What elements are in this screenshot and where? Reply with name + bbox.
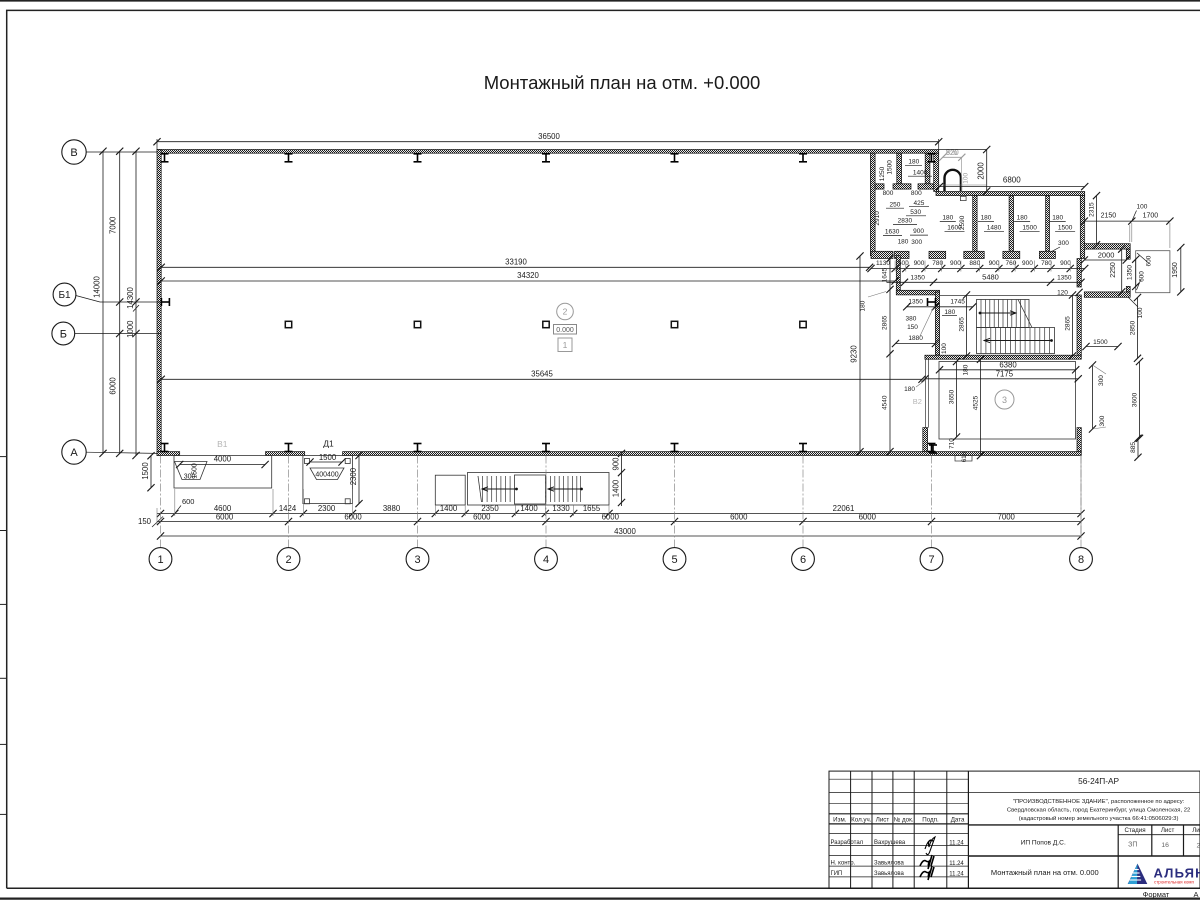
svg-text:11.24: 11.24	[949, 872, 964, 878]
svg-text:4000: 4000	[214, 455, 232, 464]
svg-text:1350: 1350	[1127, 265, 1134, 280]
svg-text:4525: 4525	[972, 395, 979, 410]
svg-text:425: 425	[913, 200, 924, 207]
svg-text:2590: 2590	[959, 215, 966, 230]
svg-text:"ПРОИЗВОДСТВЕННОЕ ЗДАНИЕ", рас: "ПРОИЗВОДСТВЕННОЕ ЗДАНИЕ", расположенное…	[1013, 799, 1185, 805]
svg-text:2: 2	[563, 307, 568, 317]
svg-text:ЗП: ЗП	[1128, 842, 1137, 849]
svg-text:(кадастровый номер земельного: (кадастровый номер земельного участка 66…	[1019, 815, 1179, 822]
svg-text:2150: 2150	[1101, 213, 1117, 220]
svg-text:В1: В1	[217, 439, 228, 449]
svg-text:Стадия: Стадия	[1124, 827, 1145, 834]
svg-text:№ док.: № док.	[894, 817, 914, 824]
svg-text:2865: 2865	[958, 317, 965, 332]
svg-text:6: 6	[800, 554, 806, 566]
svg-text:2315: 2315	[1088, 202, 1095, 217]
svg-text:1950: 1950	[1172, 262, 1179, 278]
svg-text:5480: 5480	[982, 273, 999, 282]
svg-text:56-24П-АР: 56-24П-АР	[1078, 776, 1119, 786]
svg-text:820: 820	[946, 150, 957, 157]
svg-text:100: 100	[962, 172, 969, 183]
svg-text:9230: 9230	[850, 345, 859, 363]
svg-text:6380: 6380	[999, 360, 1017, 369]
svg-text:1630: 1630	[885, 229, 900, 236]
svg-text:6800: 6800	[1003, 176, 1021, 185]
svg-text:900: 900	[1022, 260, 1033, 267]
svg-text:180: 180	[962, 364, 969, 375]
svg-text:АЛЬЯН: АЛЬЯН	[1154, 866, 1200, 881]
svg-text:180: 180	[981, 215, 992, 222]
svg-text:Дата: Дата	[951, 817, 965, 824]
svg-text:4: 4	[543, 554, 549, 566]
svg-text:1350: 1350	[908, 298, 923, 305]
svg-text:Подп.: Подп.	[922, 817, 939, 824]
svg-text:2850: 2850	[1129, 320, 1136, 335]
svg-text:180: 180	[944, 309, 955, 316]
svg-text:5: 5	[671, 554, 677, 566]
svg-text:1330: 1330	[552, 504, 570, 513]
svg-text:1500: 1500	[141, 462, 150, 480]
svg-text:2000: 2000	[977, 162, 986, 180]
svg-text:43000: 43000	[614, 527, 636, 536]
svg-text:300: 300	[911, 239, 922, 246]
svg-text:14300: 14300	[126, 286, 135, 308]
svg-text:1350: 1350	[910, 275, 925, 282]
svg-text:1700: 1700	[1143, 213, 1159, 220]
svg-text:1: 1	[157, 554, 163, 566]
svg-text:Вахрушева: Вахрушева	[874, 840, 906, 846]
svg-text:1500: 1500	[887, 160, 894, 175]
svg-text:Изм.: Изм.	[833, 817, 847, 824]
svg-text:Свердловская область, город Ек: Свердловская область, город Екатеринбург…	[1007, 808, 1190, 814]
svg-text:710: 710	[948, 438, 955, 449]
svg-text:400400: 400400	[315, 472, 338, 479]
svg-text:1655: 1655	[583, 504, 601, 513]
svg-text:380: 380	[905, 315, 916, 322]
svg-text:600: 600	[1139, 271, 1146, 282]
svg-text:7175: 7175	[996, 370, 1014, 379]
svg-text:6000: 6000	[859, 512, 877, 521]
svg-text:2: 2	[1197, 843, 1200, 850]
svg-text:6000: 6000	[216, 512, 234, 521]
svg-text:А: А	[1193, 890, 1198, 899]
svg-text:1880: 1880	[908, 335, 923, 342]
svg-text:Формат: Формат	[1143, 890, 1170, 899]
svg-text:1500: 1500	[1093, 339, 1108, 346]
svg-text:900: 900	[612, 457, 621, 471]
svg-text:3: 3	[414, 554, 420, 566]
svg-text:900: 900	[989, 260, 1000, 267]
svg-text:B2: B2	[913, 397, 922, 406]
svg-text:180: 180	[898, 239, 909, 246]
svg-text:22061: 22061	[833, 504, 855, 513]
svg-text:Б1: Б1	[58, 290, 71, 301]
svg-text:780: 780	[1041, 260, 1052, 267]
svg-text:900: 900	[914, 260, 925, 267]
svg-text:11.24: 11.24	[949, 861, 964, 867]
svg-text:180: 180	[860, 300, 867, 311]
svg-text:6000: 6000	[602, 512, 620, 521]
svg-text:1: 1	[563, 340, 568, 350]
svg-text:6000: 6000	[473, 512, 491, 521]
svg-text:7000: 7000	[109, 216, 118, 234]
svg-text:180: 180	[1017, 215, 1028, 222]
svg-text:1480: 1480	[987, 225, 1002, 232]
svg-text:1745: 1745	[950, 298, 965, 305]
svg-text:0.000: 0.000	[556, 327, 574, 334]
svg-text:3: 3	[1002, 395, 1007, 405]
svg-text:1400: 1400	[440, 504, 458, 513]
svg-text:Завьялова: Завьялова	[874, 871, 905, 877]
svg-text:В: В	[70, 147, 77, 159]
svg-text:150: 150	[907, 324, 918, 331]
svg-text:2300: 2300	[349, 467, 358, 485]
svg-text:900: 900	[913, 228, 924, 235]
svg-text:1500: 1500	[1022, 225, 1037, 232]
svg-text:1000: 1000	[126, 320, 135, 338]
svg-text:Монтажный план на отм. 0.000: Монтажный план на отм. 0.000	[991, 868, 1099, 877]
svg-text:2000: 2000	[1098, 251, 1115, 260]
svg-text:ГИП: ГИП	[831, 871, 843, 877]
svg-text:4540: 4540	[882, 395, 889, 410]
svg-text:7000: 7000	[998, 512, 1016, 521]
svg-text:180: 180	[904, 386, 915, 393]
svg-text:Б: Б	[60, 328, 67, 340]
svg-text:900: 900	[1060, 260, 1071, 267]
svg-text:2: 2	[285, 554, 291, 566]
svg-text:Д1: Д1	[323, 439, 334, 449]
svg-text:250: 250	[889, 201, 900, 208]
svg-text:Завьялова: Завьялова	[874, 860, 905, 866]
svg-text:1645: 1645	[882, 267, 889, 282]
svg-text:2250: 2250	[1110, 262, 1117, 278]
svg-text:2865: 2865	[882, 315, 889, 330]
svg-text:11.24: 11.24	[949, 841, 964, 847]
svg-text:2865: 2865	[1064, 316, 1071, 331]
svg-text:1424: 1424	[279, 504, 297, 513]
svg-text:500: 500	[898, 260, 909, 267]
svg-text:150: 150	[138, 517, 152, 526]
svg-text:1400: 1400	[520, 504, 538, 513]
svg-text:120: 120	[1057, 290, 1068, 297]
svg-text:2830: 2830	[898, 218, 913, 225]
svg-text:Монтажный план на отм. +0.000: Монтажный план на отм. +0.000	[484, 72, 761, 93]
svg-text:880: 880	[969, 260, 980, 267]
svg-text:3880: 3880	[383, 504, 401, 513]
svg-text:1400: 1400	[612, 479, 621, 497]
svg-text:900: 900	[950, 260, 961, 267]
svg-text:600: 600	[182, 497, 195, 506]
svg-text:3650: 3650	[948, 389, 955, 404]
svg-text:180: 180	[942, 215, 953, 222]
svg-text:100: 100	[941, 343, 948, 354]
svg-text:180: 180	[1052, 215, 1063, 222]
svg-text:800: 800	[883, 190, 894, 197]
svg-text:300: 300	[1099, 415, 1106, 426]
svg-text:16: 16	[1161, 842, 1169, 849]
svg-text:Лист: Лист	[876, 817, 890, 824]
svg-text:530: 530	[910, 209, 921, 216]
svg-text:2910: 2910	[874, 211, 881, 226]
svg-text:3600: 3600	[1131, 392, 1138, 407]
svg-text:Кол.уч.: Кол.уч.	[851, 817, 872, 824]
svg-text:800: 800	[911, 190, 922, 197]
svg-text:2300: 2300	[318, 504, 336, 513]
svg-text:1500: 1500	[192, 463, 199, 479]
svg-text:885: 885	[1130, 442, 1137, 453]
svg-text:строительная комп: строительная комп	[1154, 879, 1194, 884]
svg-text:1500: 1500	[319, 453, 337, 462]
svg-text:33190: 33190	[505, 257, 527, 266]
svg-text:7: 7	[928, 554, 934, 566]
svg-text:34320: 34320	[517, 271, 539, 280]
svg-text:1350: 1350	[1057, 275, 1072, 282]
svg-text:1500: 1500	[1058, 225, 1073, 232]
svg-text:35645: 35645	[531, 369, 553, 378]
svg-text:300: 300	[1098, 375, 1105, 386]
svg-text:Лист: Лист	[1161, 827, 1175, 834]
svg-text:6000: 6000	[109, 377, 118, 395]
svg-text:8: 8	[1078, 554, 1084, 566]
svg-text:Ли: Ли	[1192, 827, 1200, 834]
svg-text:Н. контр.: Н. контр.	[831, 860, 856, 866]
svg-text:14000: 14000	[93, 275, 102, 297]
svg-text:300: 300	[1058, 240, 1069, 247]
svg-text:180: 180	[908, 158, 919, 165]
svg-text:100: 100	[1136, 203, 1147, 210]
svg-text:1400: 1400	[913, 169, 928, 176]
svg-text:А: А	[70, 447, 78, 459]
svg-text:6000: 6000	[730, 512, 748, 521]
svg-text:1250: 1250	[879, 166, 886, 181]
svg-text:6000: 6000	[344, 512, 362, 521]
svg-text:36500: 36500	[538, 132, 560, 141]
svg-text:ИП Попов Д.С.: ИП Попов Д.С.	[1021, 839, 1066, 846]
svg-text:Разработал: Разработал	[831, 840, 864, 846]
